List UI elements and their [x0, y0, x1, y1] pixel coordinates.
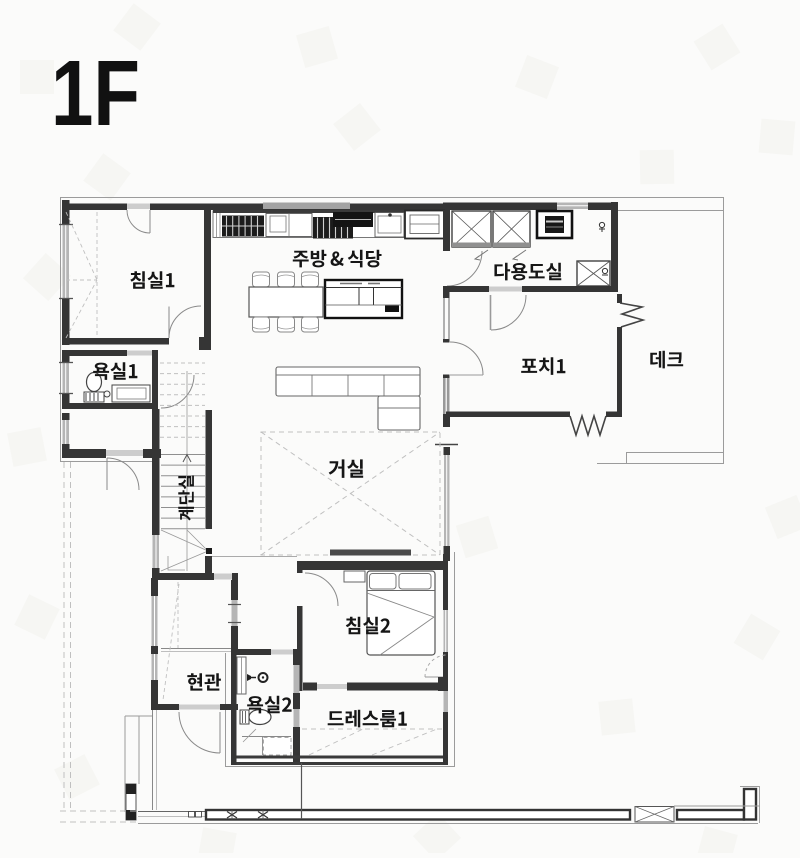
svg-text:1F: 1F [51, 41, 140, 145]
